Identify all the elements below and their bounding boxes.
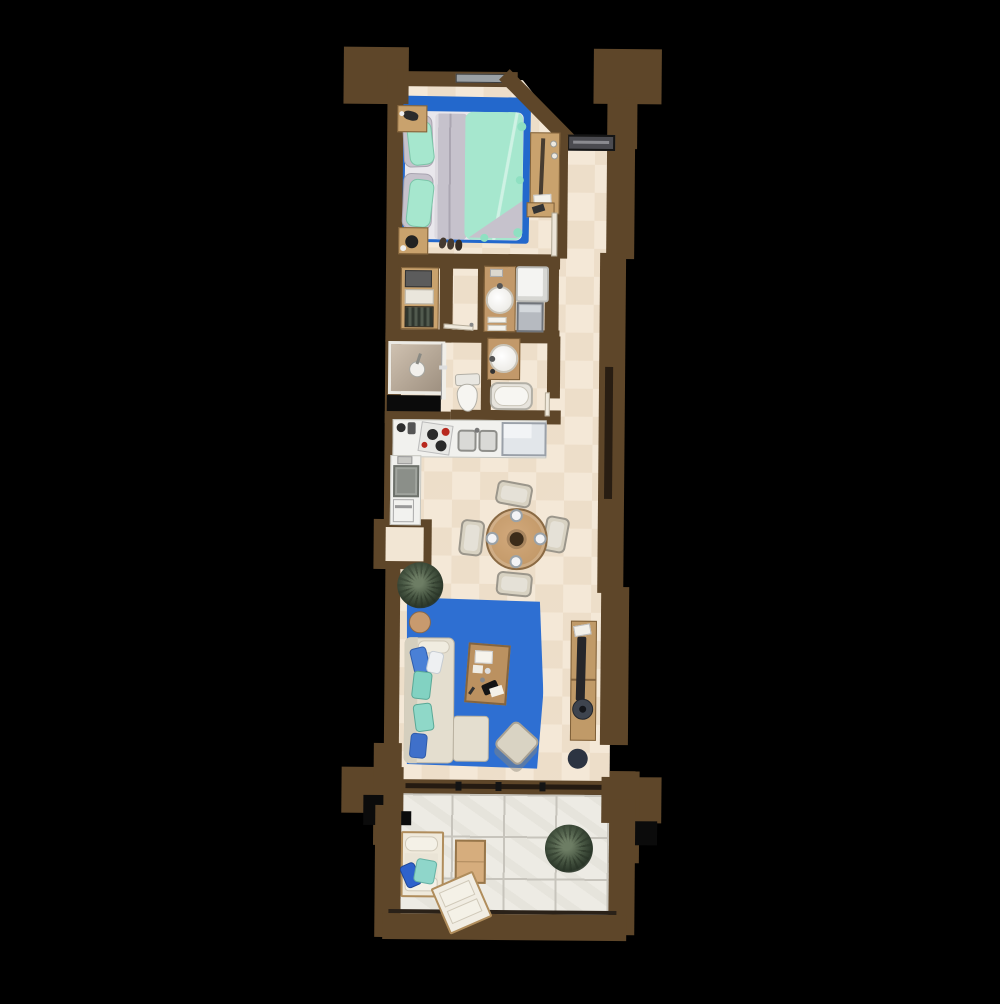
table-centerpiece [510, 532, 524, 546]
wc-door-knob [470, 323, 474, 327]
sink-faucet [475, 428, 480, 433]
desk-paper-2 [473, 665, 484, 674]
vanity-lower-dot [490, 369, 495, 374]
work-desk [464, 642, 511, 705]
wall-bath2-right [547, 336, 561, 398]
side-table [409, 611, 431, 633]
terrace-plant-fronds [545, 824, 593, 872]
place-setting-north [510, 509, 523, 522]
place-setting-west [486, 532, 499, 545]
sliding-door-handle-1 [455, 782, 461, 791]
entry-door-glass-line [573, 141, 609, 144]
desk-dot [480, 677, 485, 682]
oven [393, 499, 414, 522]
speaker-center [579, 706, 586, 713]
counter-left-item [397, 456, 412, 464]
bed-pompom-3 [513, 228, 522, 237]
bathtub-inner [494, 386, 529, 406]
vanity-upper-towel-1 [488, 317, 507, 323]
kitchen-item-small [397, 423, 406, 432]
closet-top-box [405, 270, 432, 287]
bedroom-door-leaf [551, 212, 557, 256]
sink-basin-right [478, 430, 497, 452]
cooktop-square-inner [397, 469, 415, 493]
red-pot [441, 427, 450, 436]
desk-cup [484, 668, 490, 674]
shower-cabin [516, 266, 549, 302]
refrigerator-highlight [504, 424, 532, 438]
bed-pompom-4 [480, 234, 488, 242]
burner-2 [435, 440, 448, 453]
bed-pompom-2 [516, 176, 524, 184]
terrace-plant [545, 824, 593, 872]
double-sink [455, 428, 499, 455]
vanity-upper-sink [486, 286, 514, 314]
dresser-knob-1 [550, 140, 557, 147]
shower-glass-rail [441, 343, 446, 399]
wall-right-upper [606, 99, 635, 259]
sofa-pillow-blue-2 [409, 733, 428, 760]
wall-right-lower [600, 587, 629, 745]
nightstand-bottom-cup [400, 245, 406, 251]
sofa-chaise [453, 716, 489, 762]
vanity-lower-faucet [489, 356, 495, 362]
nightstand-bottom-lamp [405, 235, 418, 248]
flat-tv [576, 637, 587, 701]
bath2-door-leaf [545, 392, 550, 416]
vanity-upper-item [490, 269, 503, 277]
dresser-knob-2 [551, 152, 558, 159]
dining-plant [397, 562, 443, 608]
bench-back-roll [405, 836, 438, 851]
bed-pompom-1 [517, 122, 526, 131]
vanity-upper-towel-2 [487, 325, 506, 331]
sink-basin-left [457, 430, 476, 452]
closet-hanging-clothes [405, 306, 434, 327]
red-knob [421, 441, 428, 448]
place-setting-south [509, 555, 522, 568]
bed-blanket-gray-band [434, 113, 467, 239]
sofa-pillow-teal-2 [412, 702, 434, 732]
oven-handle [395, 505, 412, 508]
desk-pen [468, 687, 475, 695]
terrace-wall-bottom [382, 913, 626, 941]
wall-stub-top-right [593, 49, 661, 105]
bench-pillow-teal [413, 858, 438, 885]
dining-plant-fronds [397, 562, 443, 608]
cooktop [417, 421, 453, 455]
vanity-upper-faucet [497, 283, 503, 289]
right-wall-window-channel [604, 367, 613, 499]
sliding-door-handle-3 [539, 782, 545, 791]
washing-machine-panel [520, 305, 541, 312]
kitchen-item-small-2 [408, 422, 416, 434]
wall-niche-inner [385, 527, 423, 561]
burner-1 [426, 428, 439, 441]
shower-handle [439, 365, 447, 369]
place-setting-east [534, 532, 547, 545]
closet-shelf-box [405, 289, 434, 304]
sofa-pillow-teal-1 [411, 670, 433, 700]
sliding-door-handle-2 [495, 782, 501, 791]
nightstand-top-cup [399, 111, 404, 116]
dark-pouf [568, 749, 588, 769]
desk-paper-1 [475, 650, 494, 664]
floor-plan [0, 0, 1000, 1004]
